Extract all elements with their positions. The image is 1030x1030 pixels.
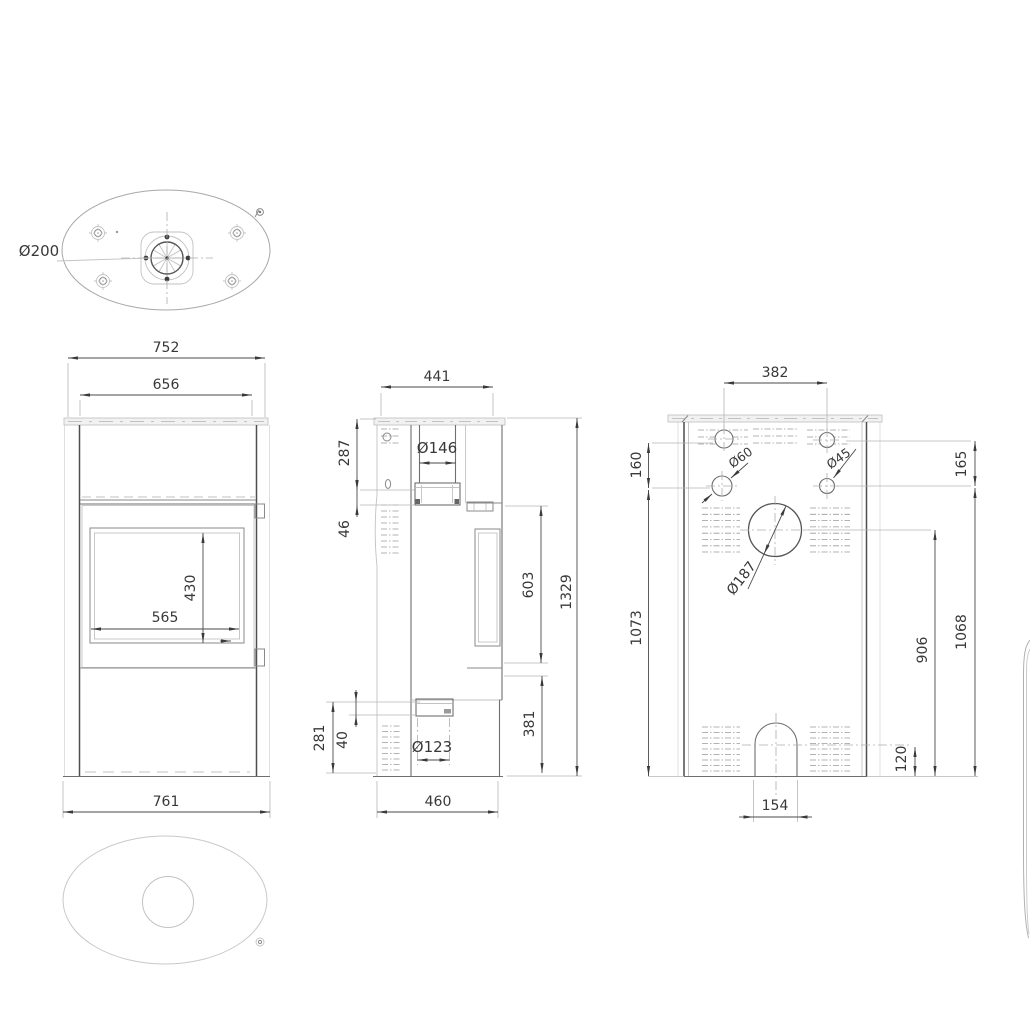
bottom-view — [63, 836, 267, 964]
drawing-sheet: Ø200 752 656 430 — [0, 0, 1030, 1030]
front-view: 752 656 430 565 761 — [63, 340, 270, 818]
side-vent-bottom — [382, 726, 400, 770]
dim-side-flue-offset: 287 — [337, 440, 353, 467]
dim-side-intake-offset: 281 — [312, 725, 328, 752]
bottom-view-oval — [63, 836, 267, 964]
rear-dimensions: 382 160 1073 165 1068 906 120 154 — [629, 365, 975, 822]
dim-side-depth: 441 — [424, 369, 451, 385]
top-view: Ø200 — [19, 190, 270, 310]
dim-rear-right-hole-offset: 165 — [954, 451, 970, 478]
side-rear-edge — [375, 425, 377, 776]
dim-rear-left-hole-offset: 160 — [629, 452, 645, 479]
rear-vent-mid-left — [702, 508, 740, 552]
dim-side-door-height: 603 — [521, 572, 537, 599]
dim-rear-right-height: 1068 — [954, 614, 970, 650]
side-vent-middle — [381, 505, 399, 553]
dim-side-base-depth: 460 — [425, 794, 452, 810]
dim-rear-arch-width: 154 — [762, 798, 789, 814]
dim-rear-left-height: 1073 — [629, 610, 645, 646]
rear-vent-bottom-left — [702, 727, 740, 771]
dim-front-inner-width: 656 — [153, 377, 180, 393]
bottom-view-knob — [256, 938, 264, 946]
side-screw-slot — [385, 480, 390, 489]
dim-rear-arch-height: 120 — [894, 746, 910, 773]
stove-technical-drawing: Ø200 752 656 430 — [0, 0, 1030, 1030]
top-view-flue-collar — [121, 212, 213, 304]
dim-front-glass-width: 565 — [152, 610, 179, 626]
dim-side-intake-diameter: Ø123 — [412, 738, 452, 756]
dim-side-flue-pipe-diameter: Ø146 — [417, 439, 457, 457]
right-edge-partial-object — [1024, 640, 1030, 938]
rear-vent-top-center — [753, 429, 798, 443]
dim-rear-right-hole-diameter: Ø45 — [824, 445, 854, 472]
dim-side-intake-height: 40 — [335, 731, 351, 749]
dim-rear-left-hole-diameter: Ø60 — [726, 444, 756, 471]
side-vent-top — [381, 429, 399, 443]
dim-rear-flue-center-height: 906 — [915, 637, 931, 664]
dim-front-glass-height: 430 — [183, 575, 199, 602]
dim-rear-hole-spacing: 382 — [762, 365, 789, 381]
bottom-view-flue-hole — [143, 877, 194, 928]
side-view: 441 287 46 Ø146 603 1329 381 — [312, 369, 582, 818]
dim-side-lower-height: 381 — [522, 711, 538, 738]
dim-front-top-width: 752 — [153, 340, 180, 356]
side-glass-inner — [479, 533, 498, 642]
dim-front-base-width: 761 — [153, 794, 180, 810]
dim-side-collar-height: 46 — [337, 520, 353, 538]
top-view-pin — [116, 231, 118, 233]
dim-top-flue-diameter: Ø200 — [19, 242, 59, 260]
dim-side-total-height: 1329 — [559, 574, 575, 610]
dim-rear-flue-diameter: Ø187 — [724, 559, 760, 599]
top-flue-leader-line — [57, 258, 151, 261]
rear-view: Ø60 Ø45 Ø187 382 160 1073 165 1068 906 1… — [629, 365, 978, 822]
top-view-oval-body — [62, 190, 270, 310]
top-view-knob — [255, 209, 263, 217]
rear-vent-bottom-right — [810, 727, 850, 771]
side-dimensions: 441 287 46 Ø146 603 1329 381 — [312, 369, 582, 818]
